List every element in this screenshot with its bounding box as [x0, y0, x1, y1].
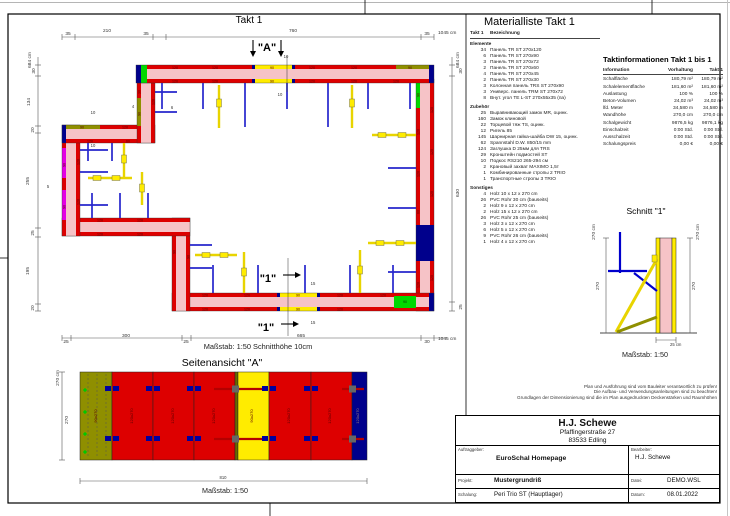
takt-info-cell: Schalungspreis — [603, 141, 661, 148]
drawing-label: 5 — [47, 184, 50, 189]
drawing-label: 120 — [337, 294, 343, 298]
drawing-label: 90 — [62, 205, 66, 209]
plan-braces — [80, 83, 416, 293]
drawing-label: 90x270 — [93, 409, 98, 423]
drawing-label: 35 — [424, 31, 430, 37]
drawing-label: 60 — [126, 140, 130, 144]
drawing-label: 120 — [309, 66, 315, 70]
drawing-label: 120 — [309, 80, 315, 84]
material-list: Materialliste Takt 1 Takt 1 Bezeichnung … — [470, 16, 600, 246]
material-item: 1Holz 4 x 12 x 270 cm — [470, 240, 600, 246]
drawing-label: 665 — [297, 333, 305, 339]
takt-info-cell: Ausschalzeit — [603, 134, 661, 141]
drawing-label: 120 — [430, 275, 434, 281]
takt-info-row: Auslastung100 %100 % — [603, 91, 723, 98]
drawing-label: 120 — [87, 140, 93, 144]
drawing-label: 120 — [351, 66, 357, 70]
drawing-label: 120 — [137, 219, 143, 223]
takt-info-cell: Beton-Volumen — [603, 98, 661, 105]
drawing-label: 120 — [202, 294, 208, 298]
drawing-label: 6 — [171, 105, 174, 110]
material-item-name: Транспортные стропы 3 TRIO — [490, 177, 556, 183]
takt-info-row: Schalungspreis0,00 €0,00 € — [603, 141, 723, 148]
takt-info-cell: 100 % — [661, 91, 693, 98]
material-item-qty: 1 — [470, 240, 486, 246]
drawing-label: 90 — [403, 300, 407, 304]
section-view: Schnitt "1" 270 cm270270 cm27025 cm Maßs… — [591, 206, 701, 359]
drawing-label: 90 — [80, 126, 84, 130]
material-list-body: Elemente34Панель TR ST 270x1206Панель TR… — [470, 42, 600, 246]
drawing-label: 120 — [416, 129, 420, 135]
takt-info-cell: 180,79 m² — [693, 76, 723, 83]
drawing-label: 810 — [220, 475, 228, 480]
section-wall — [656, 238, 676, 333]
drawing-label: 90 — [137, 112, 141, 116]
plan-scale: Maßstab: 1:50 Schnitthöhe 10cm — [204, 342, 312, 351]
datum-value: 08.01.2022 — [667, 491, 698, 498]
disclaimer-line: Grundlagen der Dimensionierung sind die … — [477, 395, 717, 400]
takt-info-row: Wandhöhe270,0 cm270,0 cm — [603, 112, 723, 119]
title-block: H.J. Schewe Pfaffingerstraße 27 83533 Ed… — [455, 415, 720, 503]
drawing-label: "1" — [258, 322, 275, 334]
drawing-label: 120 — [337, 308, 343, 312]
takt-info-cell: 0:00 Std. — [661, 134, 693, 141]
material-item: 1Транспортные стропы 3 TRIO — [470, 177, 600, 183]
drawing-label: 10 — [278, 92, 283, 97]
bearbeiter-label: Bearbeiter: — [631, 447, 717, 452]
drawing-label: 25 cm — [670, 342, 682, 347]
takt-info-cell: 0:00 Std. — [693, 127, 723, 134]
drawing-label: 15 — [311, 320, 316, 325]
drawing-label: 90 — [62, 163, 66, 167]
section-scale: Maßstab: 1:50 — [622, 350, 668, 359]
drawing-label: 25 — [63, 339, 69, 345]
material-list-title: Materialliste Takt 1 — [484, 16, 600, 28]
title-block-row-client: Auftraggeber: EuroSchal Homepage Bearbei… — [456, 446, 719, 475]
section-view-labels: 270 cm270270 cm27025 cm — [591, 224, 701, 347]
drawing-label: 120 — [416, 171, 420, 177]
drawing-label: 30 — [137, 90, 141, 94]
takt-info-cell: 181,60 m² — [693, 84, 723, 91]
company-city: 83533 Edling — [456, 437, 719, 445]
takt-info-row: Schalfläche180,79 m²180,79 m² — [603, 76, 723, 83]
title-block-row-project: Projekt: Mustergrundriß Datei: DEMO.WSL — [456, 475, 719, 489]
side-view-scale: Maßstab: 1:50 — [202, 486, 248, 495]
takt-info-cell: lfd. Meter — [603, 105, 661, 112]
takt-info-cell: Schalgewicht — [603, 120, 661, 127]
drawing-label: 760 — [289, 28, 297, 34]
drawing-label: 120 — [430, 107, 434, 113]
drawing-label: 120 — [202, 308, 208, 312]
takt-info-body: Schalfläche180,79 m²180,79 m²Schalelemen… — [603, 76, 723, 148]
drawing-label: 120x270 — [211, 408, 216, 424]
company-name: H.J. Schewe — [456, 418, 719, 429]
drawing-label: 10 — [91, 110, 96, 115]
material-item: 8Внут. угол TE L-ST 270x55x35 (па) — [470, 96, 600, 102]
drawing-label: 120 — [380, 294, 386, 298]
drawing-label: 210 — [103, 28, 111, 34]
plan-title: Takt 1 — [236, 15, 263, 26]
drawing-label: 120 — [212, 80, 218, 84]
drawing-label: "A" — [258, 42, 276, 54]
takt-info-cell: 0:00 Std. — [693, 134, 723, 141]
projekt-label: Projekt: — [458, 476, 494, 483]
drawing-label: "1" — [260, 273, 277, 285]
drawing-label: 90 — [296, 308, 300, 312]
drawing-label: 30 — [424, 339, 430, 345]
auftraggeber-label: Auftraggeber: — [458, 447, 624, 452]
takt-info-col-information: Information — [603, 67, 661, 74]
drawing-label: 25 — [30, 230, 36, 236]
drawing-label: 300 — [122, 333, 130, 339]
drawing-label: 270 cm — [55, 370, 61, 386]
drawing-label: 120 — [430, 149, 434, 155]
takt-info-row: Ausschalzeit0:00 Std.0:00 Std. — [603, 134, 723, 141]
takt-info-cell: 180,79 m² — [661, 76, 693, 83]
drawing-label: 120 — [416, 282, 420, 288]
drawing-label: 120 — [76, 159, 80, 165]
takt-info-cell: Einschalzeit — [603, 127, 661, 134]
drawing-label: 270 — [691, 282, 697, 290]
datum-label: Datum: — [631, 490, 667, 497]
plan-view: Takt 1 — [25, 15, 464, 351]
section-title: Schnitt "1" — [626, 206, 665, 216]
section-dimensions — [603, 238, 693, 343]
drawing-label: 120 — [244, 308, 250, 312]
projekt-value: Mustergrundriß — [494, 477, 541, 484]
takt-info-cell: 100 % — [693, 91, 723, 98]
takt-info-row: lfd. Meter34,580 m34,580 m — [603, 105, 723, 112]
datei-value: DEMO.WSL — [667, 477, 701, 484]
takt-info-row: Einschalzeit0:00 Std.0:00 Std. — [603, 127, 723, 134]
takt-info-title: Taktinformationen Takt 1 bis 1 — [603, 56, 723, 63]
takt-info-cell: Schalfläche — [603, 76, 661, 83]
drawing-label: 60 — [416, 210, 420, 214]
takt-info-row: Beton-Volumen24,02 m³24,02 m³ — [603, 98, 723, 105]
side-view-panels — [80, 372, 367, 460]
drawing-label: 270 — [595, 282, 601, 290]
drawing-label: 90 — [416, 93, 420, 97]
takt-info-cell: 34,580 m — [661, 105, 693, 112]
takt-info-header: Information Vorhaltung Takt 1 — [603, 67, 723, 75]
qty-column-header: Takt 1 — [470, 31, 486, 37]
takt-info-row: Schalgewicht9876,5 kg9876,1 kg — [603, 120, 723, 127]
section-props — [616, 255, 657, 332]
drawing-label: 25 — [183, 339, 189, 345]
drawing-label: 4 — [132, 104, 135, 109]
drawing-label: 120x270 — [327, 408, 332, 424]
drawing-label: 90 — [186, 255, 190, 259]
material-item-name: Holz 4 x 12 x 270 cm — [490, 240, 535, 246]
schalung-label: Schalung: — [458, 490, 494, 497]
drawing-label: 120 — [430, 191, 434, 197]
drawing-label: 20 — [30, 127, 36, 133]
drawing-label: 120 — [76, 199, 80, 205]
takt-info-cell: Auslastung — [603, 91, 661, 98]
drawing-label: 630 — [455, 189, 461, 197]
drawing-label: 120 — [97, 219, 103, 223]
drawing-label: 1045 cm — [438, 30, 456, 36]
drawing-label: 90 — [172, 250, 176, 254]
drawing-label: 195 — [25, 267, 31, 275]
drawing-label: 120 — [172, 66, 178, 70]
drawing-label: 684 cm — [455, 52, 461, 68]
datei-label: Datei: — [631, 476, 667, 483]
takt-info-row: Schalelementfläche181,60 m²181,60 m² — [603, 84, 723, 91]
takt-info-col-vorhaltung: Vorhaltung — [661, 67, 693, 74]
drawing-label: 35 — [65, 31, 71, 37]
drawing-label: 90 — [270, 66, 274, 70]
takt-info-cell: Schalelementfläche — [603, 84, 661, 91]
drawing-label: 120 — [137, 233, 143, 237]
drawing-label: 25 — [458, 304, 464, 310]
drawing-label: 684 cm — [27, 52, 33, 68]
takt-info-cell: 270,0 cm — [661, 112, 693, 119]
drawing-label: 30 — [31, 68, 37, 74]
name-column-header: Bezeichnung — [490, 31, 520, 37]
drawing-label: 120 — [244, 294, 250, 298]
drawing-label: 90 — [408, 66, 412, 70]
takt-info-cell: 9876,5 kg — [661, 120, 693, 127]
section-bracket — [608, 232, 657, 291]
drawing-label: 134 — [26, 98, 32, 106]
drawing-label: 120 — [212, 66, 218, 70]
drawing-label: 120x270 — [355, 408, 360, 424]
auftraggeber-value: EuroSchal Homepage — [496, 455, 624, 462]
drawing-label: 10 — [284, 54, 289, 59]
takt-info-cell: 24,02 m³ — [661, 98, 693, 105]
takt-info: Taktinformationen Takt 1 bis 1 Informati… — [603, 56, 723, 148]
drawing-label: 120 — [122, 126, 128, 130]
material-item-qty: 8 — [470, 96, 486, 102]
drawing-label: 120x270 — [129, 408, 134, 424]
drawing-label: 10 — [91, 143, 96, 148]
takt-info-cell: Wandhöhe — [603, 112, 661, 119]
drawing-label: 90 — [270, 80, 274, 84]
drawing-label: 270 cm — [695, 224, 701, 240]
drawing-label: 120 — [172, 80, 178, 84]
drawing-label: 90 — [296, 294, 300, 298]
drawing-label: 255 — [25, 177, 31, 185]
plan-walls — [62, 65, 434, 311]
side-view-title: Seitenansicht "A" — [182, 357, 263, 369]
side-view: Seitenansicht "A" — [55, 357, 367, 495]
title-block-company: H.J. Schewe Pfaffingerstraße 27 83533 Ed… — [456, 416, 719, 446]
schalung-value: Peri Trio ST (Hauptlager) — [494, 491, 563, 498]
disclaimer-notes: Plan und Ausführung sind vom Bauleiter v… — [477, 384, 717, 400]
drawing-label: 20 — [30, 305, 36, 311]
title-block-row-formwork: Schalung: Peri Trio ST (Hauptlager) Datu… — [456, 489, 719, 502]
drawing-label: 270 — [64, 416, 70, 424]
drawing-label: 120 — [97, 233, 103, 237]
drawing-label: 1045 cm — [438, 336, 456, 342]
drawing-label: 15 — [311, 281, 316, 286]
drawing-label: 120 — [393, 80, 399, 84]
takt-info-col-takt1: Takt 1 — [693, 67, 723, 74]
drawing-label: 90x270 — [249, 409, 254, 423]
takt-info-cell: 0,00 € — [693, 141, 723, 148]
takt-info-cell: 0,00 € — [661, 141, 693, 148]
takt-info-cell: 9876,1 kg — [693, 120, 723, 127]
bearbeiter-value: H.J. Schewe — [635, 454, 717, 461]
material-list-header: Takt 1 Bezeichnung — [470, 31, 600, 39]
plan-sheet: Takt 1 — [0, 0, 730, 516]
company-street: Pfaffingerstraße 27 — [456, 429, 719, 437]
takt-info-cell: 270,0 cm — [693, 112, 723, 119]
material-item-qty: 1 — [470, 177, 486, 183]
drawing-label: 35 — [143, 31, 149, 37]
drawing-label: 120 — [151, 99, 155, 105]
drawing-label: 120 — [351, 80, 357, 84]
material-item-name: Внут. угол TE L-ST 270x55x35 (па) — [490, 96, 566, 102]
takt-info-cell: 0:00 Std. — [661, 127, 693, 134]
drawing-label: 120x270 — [170, 408, 175, 424]
takt-info-cell: 181,60 m² — [661, 84, 693, 91]
takt-info-cell: 34,580 m — [693, 105, 723, 112]
takt-info-cell: 24,02 m³ — [693, 98, 723, 105]
drawing-label: 30 — [458, 68, 464, 74]
drawing-label: 120x270 — [286, 408, 291, 424]
